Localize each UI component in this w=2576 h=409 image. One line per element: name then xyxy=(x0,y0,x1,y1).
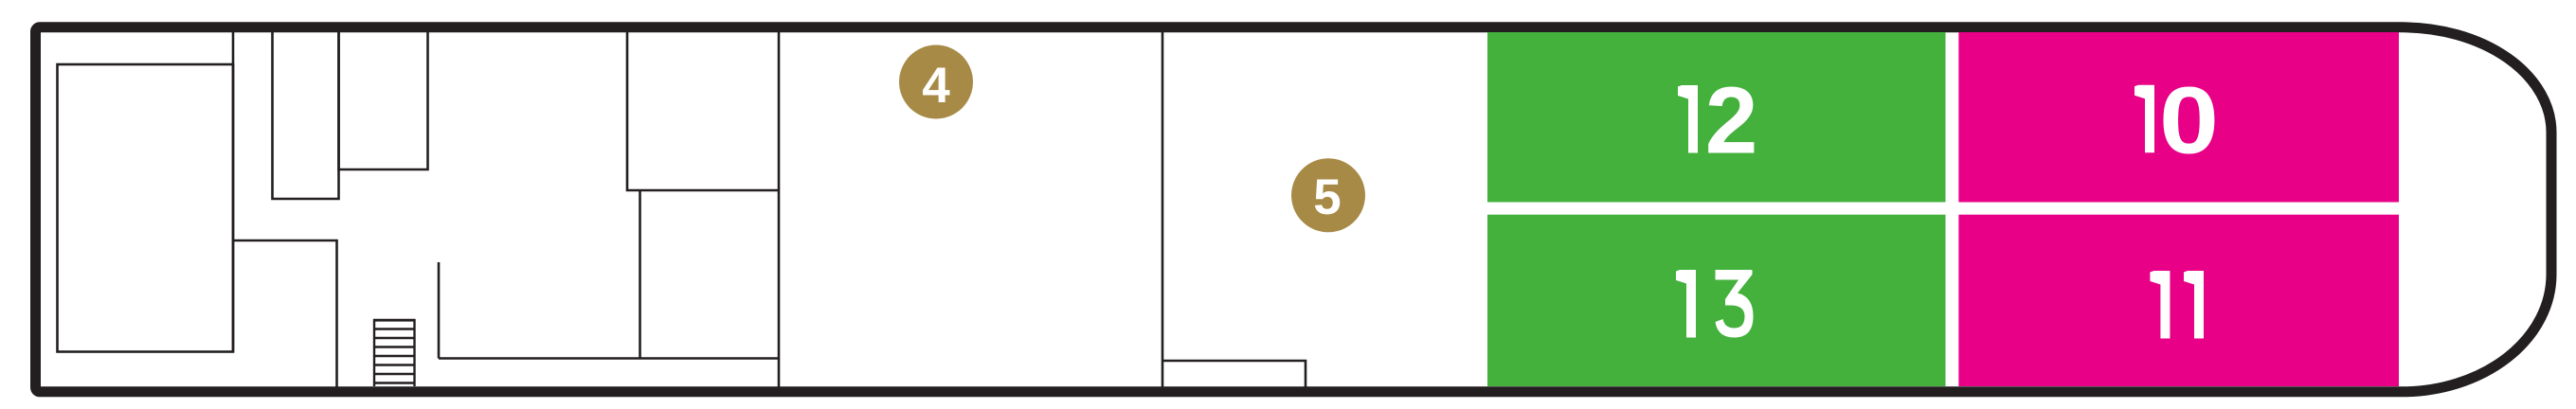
svg-text:2: 2 xyxy=(1705,68,1758,174)
svg-text:0: 0 xyxy=(2159,68,2219,174)
svg-text:5: 5 xyxy=(1313,169,1341,225)
svg-text:4: 4 xyxy=(922,58,950,114)
